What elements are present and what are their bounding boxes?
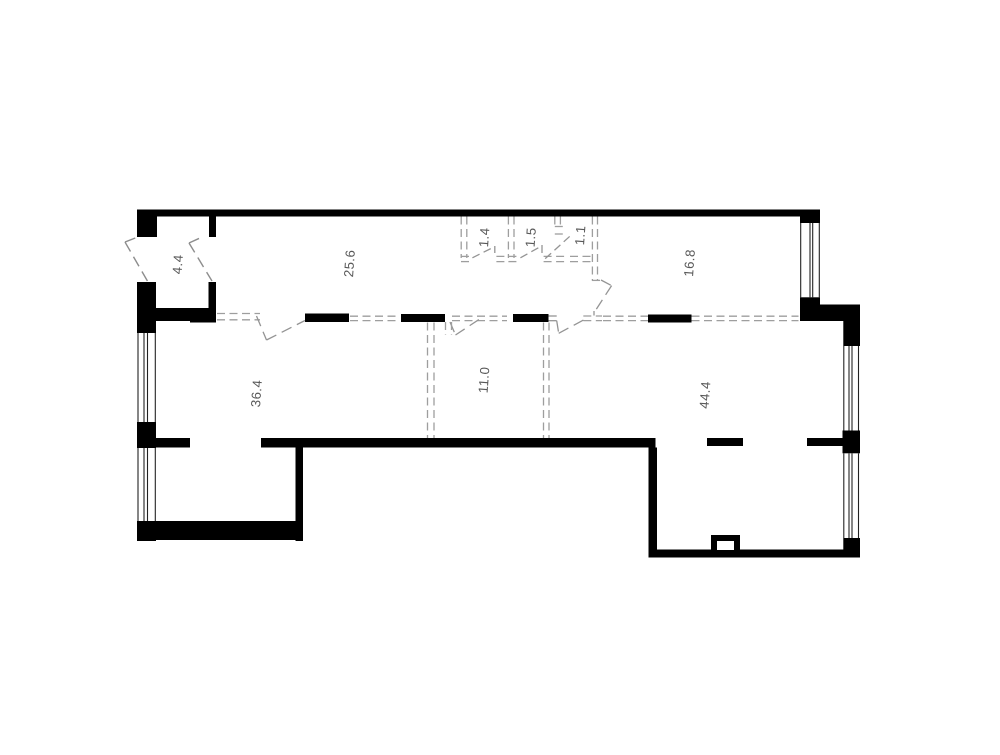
svg-text:25.6: 25.6 — [341, 249, 358, 278]
svg-text:36.4: 36.4 — [248, 379, 265, 408]
svg-text:16.8: 16.8 — [681, 249, 698, 278]
svg-text:4.4: 4.4 — [170, 254, 186, 275]
svg-text:1.5: 1.5 — [523, 227, 539, 248]
svg-text:44.4: 44.4 — [697, 381, 714, 410]
svg-text:1.4: 1.4 — [476, 227, 492, 248]
svg-text:11.0: 11.0 — [476, 366, 493, 394]
svg-text:1.1: 1.1 — [572, 225, 588, 246]
